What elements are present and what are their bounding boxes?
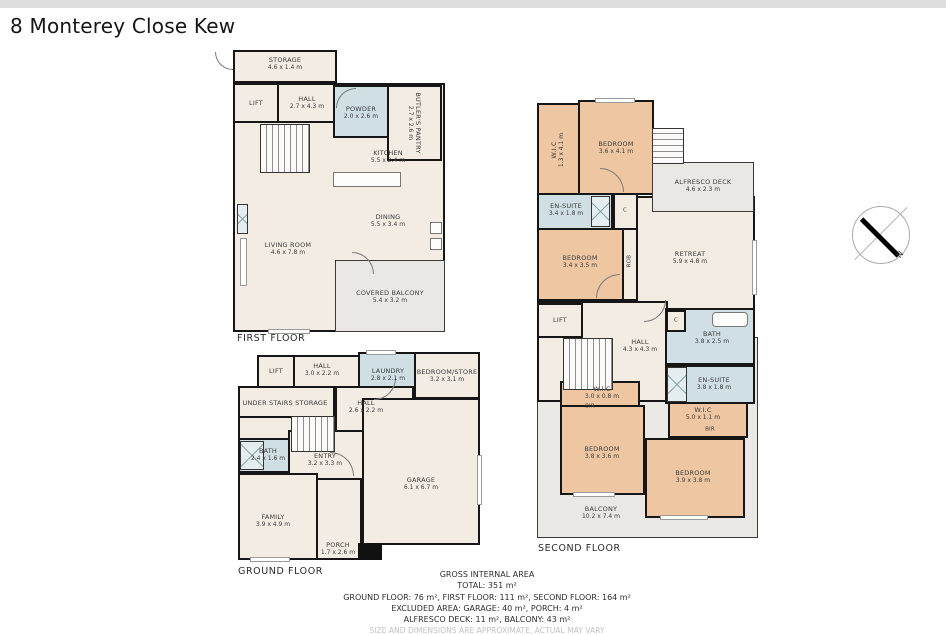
sf-robe-label: ROB [626,255,633,268]
ff-living-room-label: LIVING ROOM 4.6 x 7.8 m [265,241,311,257]
sf-bedroom-nw-window [595,98,635,103]
area-summary: GROSS INTERNAL AREA TOTAL: 351 m² GROUND… [277,569,697,635]
sf-ensuite-lower-shower [667,367,687,402]
ff-powder-label: POWDER 2.0 x 2.6 m [344,105,378,121]
gf-garage-window [477,455,482,505]
ff-kitchen-island [333,172,401,187]
gf-porch-label: PORCH 1.7 x 2.6 m [321,541,355,557]
ff-appliance [430,222,442,234]
gf-bedroom-store-label: BEDROOM/STORE 3.2 x 3.1 m [417,368,478,384]
sf-bir-mid-label: BIR [585,403,595,410]
sf-ensuite-upper-shower [591,196,610,227]
summary-excluded: EXCLUDED AREA: GARAGE: 40 m², PORCH: 4 m… [277,603,697,614]
sf-bedroom-se-label: BEDROOM 3.9 x 3.8 m [675,469,710,485]
sf-bedroom-sw-label: BEDROOM 3.8 x 3.6 m [584,445,619,461]
sf-exterior-stairs [652,128,684,164]
ff-butlers-pantry-label: BUTLER'S PANTRY 2.7 x 2.6 m [406,92,422,153]
sf-retreat-window [752,240,757,295]
compass: N [845,200,920,275]
gf-under-stairs-label: UNDER STAIRS STORAGE [243,399,328,407]
gf-hall-lower-label: HALL 2.6 x 2.2 m [349,399,383,415]
gf-lift-label: LIFT [269,367,283,375]
gf-family-window [250,557,290,562]
sf-wic-mid-label: W.I.C 3.0 x 0.8 m [585,385,619,401]
gf-laundry-window [366,350,396,355]
ff-covered-balcony-label: COVERED BALCONY 5.4 x 3.2 m [356,289,424,305]
summary-total: TOTAL: 351 m² [277,580,697,591]
sf-wic-top-label: W.I.C 1.3 x 4.1 m [550,133,566,167]
ff-stairs [260,124,310,173]
summary-heading: GROSS INTERNAL AREA [277,569,697,580]
ff-storage-label: STORAGE 4.6 x 1.4 m [268,56,302,72]
ff-hall-label: HALL 2.7 x 4.3 m [290,95,324,111]
top-border-strip [0,0,946,8]
gf-entry-label: ENTRY 3.2 x 3.3 m [308,452,342,468]
sf-bedroom-nw-label: BEDROOM 3.6 x 4.1 m [598,140,633,156]
ff-kitchen-label: KITCHEN 5.5 x 2.4 m [371,149,405,165]
sf-bedroom-w-label: BEDROOM 3.4 x 3.5 m [562,254,597,270]
sf-bir-right-label: BIR [705,426,715,433]
sf-balcony-label: BALCONY 10.2 x 7.4 m [582,505,620,521]
ff-exterior-door-arc [215,52,233,70]
sf-retreat-label: RETREAT 5.9 x 4.8 m [673,250,707,266]
first-floor-label: FIRST FLOOR [237,333,305,344]
gf-stairs [291,416,335,452]
gf-laundry-label: LAUNDRY 2.8 x 2.1 m [371,367,405,383]
ff-wall-feature [237,204,248,234]
page-title: 8 Monterey Close Kew [10,14,235,38]
floorplan-page: 8 Monterey Close Kew STORAGE 4.6 x 1.4 m… [0,0,946,635]
second-floor-label: SECOND FLOOR [538,543,621,554]
ff-dining-label: DINING 5.5 x 3.4 m [371,213,405,229]
sf-bedroom-sw-window [573,492,615,497]
gf-garage-room [362,398,480,545]
sf-stairs [563,338,613,390]
sf-hall-label: HALL 4.3 x 4.3 m [623,338,657,354]
gf-garage-label: GARAGE 6.1 x 6.7 m [404,476,438,492]
gf-garage-step [358,543,382,560]
ff-window-left [240,238,247,286]
gf-bath-label: BATH 2.4 x 1.6 m [251,447,285,463]
summary-floors: GROUND FLOOR: 76 m², FIRST FLOOR: 111 m²… [277,592,697,603]
ff-appliance-2 [430,238,442,250]
ff-lift-label: LIFT [249,99,263,107]
sf-wic-right-label: W.I.C 5.0 x 1.1 m [686,406,720,422]
sf-cupboard-a-label: C [623,207,627,214]
gf-family-label: FAMILY 3.9 x 4.9 m [256,513,290,529]
summary-disclaimer: SIZE AND DIMENSIONS ARE APPROXIMATE, ACT… [277,626,697,635]
sf-bath-tub [712,312,748,327]
summary-decks: ALFRESCO DECK: 11 m², BALCONY: 43 m² [277,614,697,625]
sf-ensuite-lower-label: EN-SUITE 3.8 x 1.8 m [697,376,731,392]
gf-hall-upper-label: HALL 3.0 x 2.2 m [305,362,339,378]
sf-bath-label: BATH 3.8 x 2.5 m [695,330,729,346]
sf-alfresco-label: ALFRESCO DECK 4.6 x 2.3 m [675,178,732,194]
sf-cupboard-b-label: C [674,317,678,324]
sf-lift-label: LIFT [553,316,567,324]
sf-ensuite-upper-label: EN-SUITE 3.4 x 1.8 m [549,202,583,218]
sf-bedroom-se-window [660,515,708,520]
